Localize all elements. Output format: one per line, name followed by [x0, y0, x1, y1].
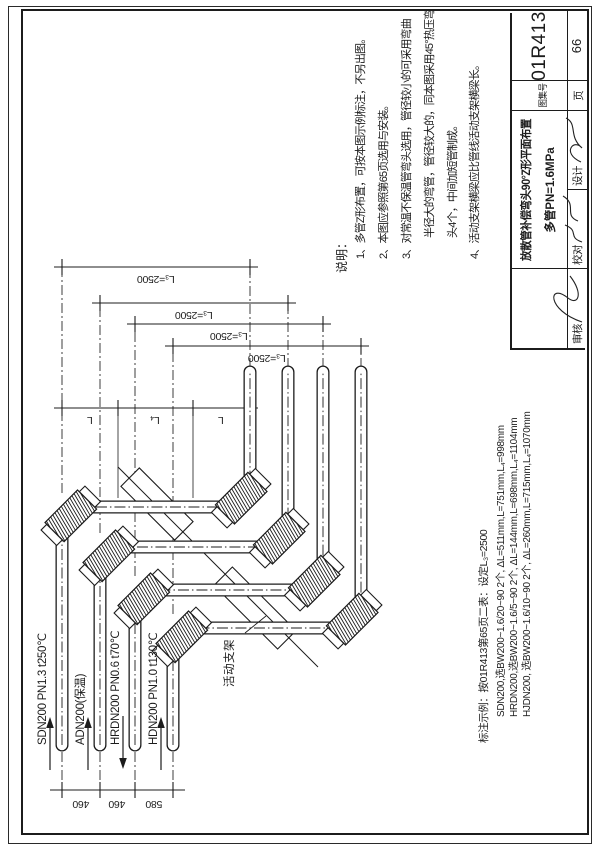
dim-spacing-2: 460 — [109, 798, 126, 810]
notes-heading: 说明： — [336, 237, 349, 273]
support-beam-label: 活动支架 — [224, 639, 237, 687]
title-block: 放散管补偿弯头90°Z形平面布置 多管PN=1.6MPa 审核 校对 设计 图集… — [510, 13, 585, 350]
dim-offset-pipe1: L₃=2500 — [137, 273, 175, 285]
bellows-compensators — [39, 467, 383, 669]
signature-shenhe — [554, 276, 582, 322]
legend-header: 标注示例：按01R413第65页二表：设定L₃=2500 — [479, 530, 491, 743]
signature-sheji — [566, 118, 582, 162]
drawing-sheet: SDN200 PN1.3 t250℃ ADN200(保温) HRDN200 PN… — [0, 0, 600, 850]
pipe-label-adn200: ADN200(保温) — [75, 674, 88, 745]
dim-spacing-1: 460 — [73, 798, 90, 810]
legend-row-hrdn200: HRDN200,选BW200~1.6/5~90 2个, ΔL=144mm,L=6… — [509, 418, 520, 717]
pipe-label-hdn200: HDN200 PN1.0 t130℃ — [148, 633, 161, 745]
dim-offset-pipe4: L₃=2500 — [248, 352, 286, 364]
dim-offset-pipe3: L₃=2500 — [210, 330, 248, 342]
legend-row-sdn200: SDN200,选BW200~1.6/20~90 2个, ΔL=511mm,L=7… — [496, 425, 507, 717]
note-1: 1、多管Z形布置，可按本图示例标注，不另出图。 — [355, 34, 367, 259]
pipe-hrdn200 — [135, 372, 323, 745]
dim-seg-l-upper: L — [87, 414, 93, 426]
pipe-label-hrdn200: HRDN200 PN0.6 t70℃ — [110, 631, 123, 745]
note-3b: 半径大的弯管，管径较大的，同本图采用45°热压弯 — [424, 10, 436, 238]
dim-offset-pipe2: L₃=2500 — [175, 309, 213, 321]
note-3: 3、对常温不保温管弯头选用，管径较小的可采用弯曲 — [401, 19, 413, 259]
signature-jiaodui — [563, 196, 582, 242]
dim-spacing-3: 580 — [146, 798, 163, 810]
note-2: 2、本图应参照第65页选用与安装。 — [378, 100, 390, 259]
dim-seg-l4: L₄ — [150, 414, 160, 426]
legend-row-hjdn200: HJDN200, 选BW200~1.6/10~90 2个, ΔL=260mm,L… — [522, 411, 533, 717]
note-3c: 头4个，中间加短管制成。 — [447, 120, 459, 238]
scanned-page: SDN200 PN1.3 t250℃ ADN200(保温) HRDN200 PN… — [0, 0, 600, 850]
pipe-label-sdn200: SDN200 PN1.3 t250℃ — [37, 633, 50, 745]
signatures — [512, 11, 587, 348]
dim-seg-l-lower: L — [218, 414, 224, 426]
note-4: 4、活动支架横梁应比管线活动支架横梁长。 — [469, 60, 481, 259]
